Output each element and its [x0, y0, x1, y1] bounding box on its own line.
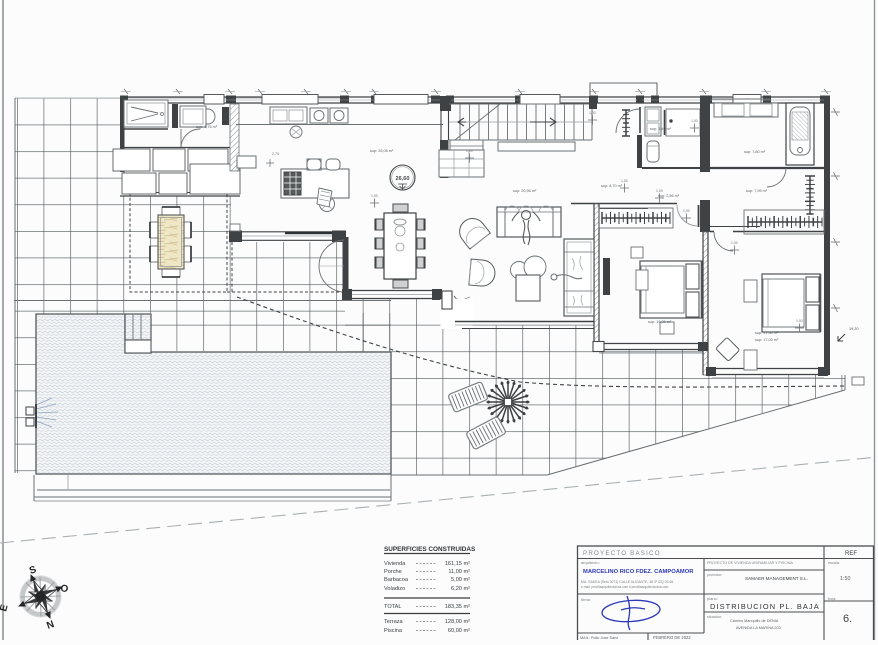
svg-text:Barbacoa: Barbacoa	[384, 577, 409, 583]
svg-text:1,00: 1,00	[683, 209, 690, 213]
svg-text:promotor:: promotor:	[707, 573, 722, 577]
svg-text:Camino Manquillo de DENIA: Camino Manquillo de DENIA	[730, 619, 779, 623]
svg-text:MARCELINO RICO FDEZ. CAMPOAMOR: MARCELINO RICO FDEZ. CAMPOAMOR	[583, 569, 694, 575]
svg-text:1,00: 1,00	[731, 241, 738, 245]
svg-text:sup: 7,80 m²: sup: 7,80 m²	[744, 150, 766, 154]
svg-text:sup: 19,30 m²: sup: 19,30 m²	[648, 320, 672, 324]
svg-text:TOTAL: TOTAL	[384, 604, 402, 610]
svg-text:128,00 m²: 128,00 m²	[445, 619, 470, 625]
svg-text:sup: 7,95 m²: sup: 7,95 m²	[746, 189, 768, 193]
svg-text:plano:: plano:	[707, 596, 718, 601]
svg-text:Vivienda: Vivienda	[384, 561, 406, 567]
svg-text:firma:: firma:	[581, 597, 591, 602]
svg-text:1,00: 1,00	[589, 111, 596, 115]
svg-text:sup: 17,50 m²: sup: 17,50 m²	[755, 331, 779, 335]
svg-text:MAIL: Pollo Jose Sanz: MAIL: Pollo Jose Sanz	[580, 636, 618, 640]
svg-text:sup: 8,70 m²: sup: 8,70 m²	[601, 184, 623, 188]
svg-text:1:50: 1:50	[840, 576, 851, 582]
svg-text:1,00: 1,00	[466, 149, 473, 153]
svg-text:REF: REF	[845, 551, 857, 557]
svg-text:FEBRERO DE 2022: FEBRERO DE 2022	[653, 635, 691, 640]
svg-text:sup: 17,00 m²: sup: 17,00 m²	[755, 338, 779, 342]
svg-text:situación:: situación:	[707, 615, 722, 619]
svg-text:sup: 26,06 m²: sup: 26,06 m²	[370, 149, 394, 153]
svg-text:5,00 m²: 5,00 m²	[451, 577, 470, 583]
svg-text:1,00: 1,00	[796, 319, 803, 323]
svg-text:19,20: 19,20	[849, 327, 859, 331]
svg-text:2,70: 2,70	[272, 152, 279, 156]
svg-text:11,00 m²: 11,00 m²	[448, 569, 470, 575]
svg-text:MA. GADEA (Seto 3071) CALLE AL: MA. GADEA (Seto 3071) CALLE ALICANTE, 48…	[581, 580, 673, 584]
svg-text:PROYECTO DE VIVIENDA UNIFAMILI: PROYECTO DE VIVIENDA UNIFAMILIAR Y PISCI…	[707, 561, 793, 565]
svg-text:arquitecto:: arquitecto:	[581, 560, 600, 565]
svg-text:SUPERFICIES CONSTRUIDAS: SUPERFICIES CONSTRUIDAS	[384, 546, 476, 553]
svg-text:hoja:: hoja:	[828, 597, 836, 601]
svg-text:DISTRIBUCION PL. BAJA: DISTRIBUCION PL. BAJA	[710, 602, 820, 611]
svg-text:26,60: 26,60	[396, 176, 410, 182]
svg-text:6.: 6.	[843, 613, 852, 625]
svg-text:Terraza: Terraza	[384, 619, 404, 625]
svg-text:sup: 2,56 m²: sup: 2,56 m²	[658, 194, 680, 198]
svg-text:sup: 3,40 m²: sup: 3,40 m²	[650, 127, 672, 131]
svg-text:1,00: 1,00	[371, 194, 378, 198]
svg-text:60,00 m²: 60,00 m²	[448, 628, 470, 634]
svg-text:SAMAER MANAGEMENT S.L.: SAMAER MANAGEMENT S.L.	[745, 576, 808, 581]
svg-text:PROYECTO BASICO: PROYECTO BASICO	[583, 550, 661, 557]
svg-text:sup: 1,76 m²: sup: 1,76 m²	[196, 125, 218, 129]
svg-text:Voladizo: Voladizo	[384, 586, 405, 592]
svg-text:AVENIDA LA MARINA 203: AVENIDA LA MARINA 203	[736, 626, 781, 630]
svg-text:1,00: 1,00	[691, 119, 698, 123]
svg-text:sup: 20,96 m²: sup: 20,96 m²	[513, 189, 537, 193]
svg-text:1,00: 1,00	[656, 189, 663, 193]
svg-text:161,15 m²: 161,15 m²	[445, 561, 470, 567]
svg-text:escala:: escala:	[828, 561, 840, 565]
svg-text:Porche: Porche	[384, 569, 402, 575]
svg-text:e-mail: pmvillaarquitectonica.: e-mail: pmvillaarquitectonica.com # pmvi…	[581, 585, 669, 589]
svg-text:Piscina: Piscina	[384, 628, 403, 634]
svg-text:183,35 m²: 183,35 m²	[445, 604, 470, 610]
svg-text:6,20 m²: 6,20 m²	[451, 586, 470, 592]
svg-text:1,00: 1,00	[621, 179, 628, 183]
